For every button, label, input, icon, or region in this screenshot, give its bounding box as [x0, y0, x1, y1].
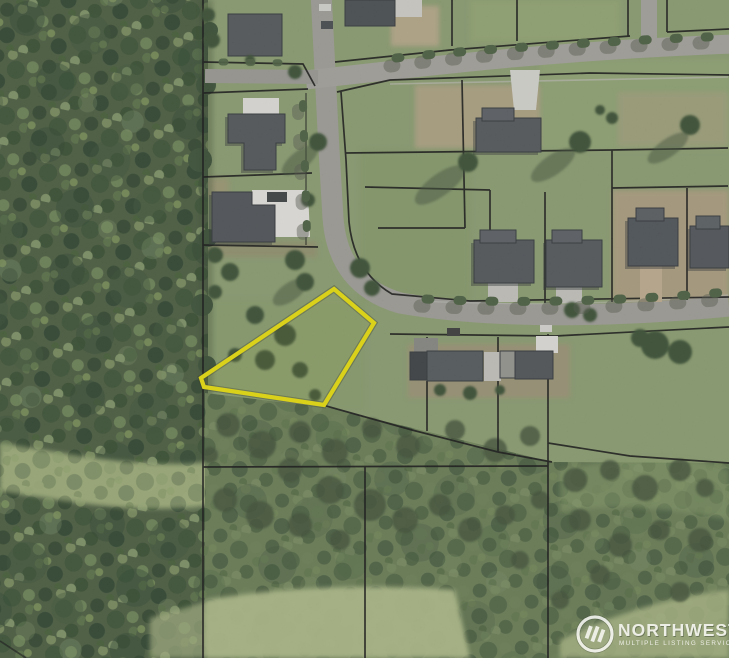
aerial-map: NORTHWEST NORTHWEST MULTIPLE LISTING SER…	[0, 0, 729, 658]
nwmls-logo-icon	[578, 617, 612, 651]
watermark: NORTHWEST NORTHWEST MULTIPLE LISTING SER…	[578, 617, 729, 651]
photo-grain	[0, 0, 729, 658]
aerial-map-screenshot: NORTHWEST NORTHWEST MULTIPLE LISTING SER…	[0, 0, 729, 658]
watermark-brand-text: NORTHWEST	[618, 620, 729, 640]
watermark-tagline-text: MULTIPLE LISTING SERVICE	[619, 640, 729, 647]
